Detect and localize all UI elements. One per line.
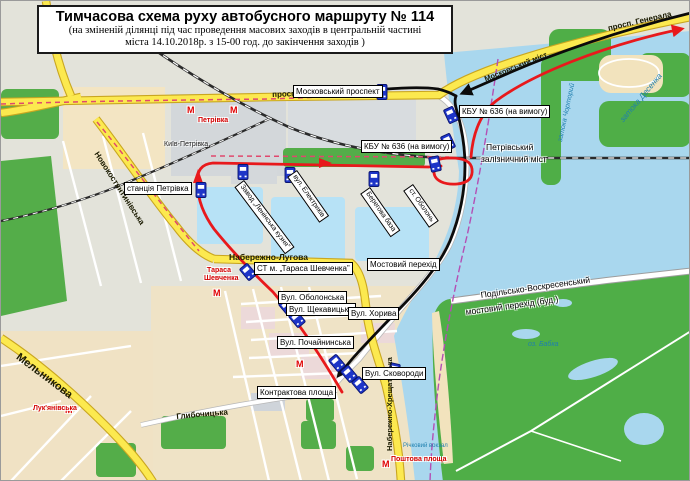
stop-label-st-m-tarasa-shevchenka: СТ м. „Тараса Шевченка” (254, 262, 353, 275)
stop-label-kbu-636-b: КБУ № 636 (на вимогу) (459, 105, 550, 118)
stop-label-vul-skovorody: Вул. Сковороди (362, 367, 426, 380)
map-subtitle-line2: міста 14.10.2018р. з 15-00 год. до закін… (41, 37, 449, 49)
metro-icon: М (382, 460, 390, 469)
stop-label-mostovyi-perekhid: Мостовий перехід (367, 258, 440, 271)
metro-label-poshtova-ploshcha: Поштова площа (391, 456, 447, 463)
station-label-kyiv-petrivka: Київ-Петрівка (164, 141, 208, 148)
road-label-naberezhno-luhova: Набережно-Лугова (229, 252, 308, 262)
metro-icon: М (230, 106, 238, 115)
stop-label-moskovskyi-prospekt: Московський проспект (293, 85, 383, 98)
stop-label-vul-shchekavytska: Вул. Щекавицька (286, 303, 356, 316)
stop-label-vul-pochayninska: Вул. Почайнинська (277, 336, 354, 349)
map-title: Тимчасова схема руху автобусного маршрут… (41, 9, 449, 25)
metro-icon: М (187, 106, 195, 115)
metro-label-petrivka: Петрівка (198, 117, 228, 124)
bus-stop-icon (196, 183, 206, 198)
stop-label-kbu-636-a: КБУ № 636 (на вимогу) (361, 140, 452, 153)
metro-label-tarasa-shevchenka-line2: Шевченка (204, 275, 239, 282)
map-canvas: Тимчасова схема руху автобусного маршрут… (0, 0, 690, 481)
label-richkovyi-vokzal: Річковий вокзал (403, 443, 448, 449)
water-label-oz-babka: оз. Бабка (528, 341, 559, 348)
stop-label-vul-khoryva: Вул. Хорива (348, 307, 399, 320)
metro-icon: М (296, 360, 304, 369)
metro-icon: М (213, 289, 221, 298)
metro-label-lukianivska: Лук'янівська (33, 405, 77, 412)
stop-label-kontraktova-ploshcha: Контрактова площа (257, 386, 336, 399)
bus-stop-icon (369, 172, 379, 187)
metro-label-tarasa-shevchenka-line1: Тараса (207, 267, 231, 274)
map-graphics (1, 1, 690, 481)
bus-stop-icon (238, 165, 248, 180)
bridge-label-petrivskyi-line2: залізничний міст (481, 154, 547, 164)
bridge-label-petrivskyi-line1: Петрівський (486, 142, 533, 152)
title-box: Тимчасова схема руху автобусного маршрут… (37, 5, 453, 54)
station-label-petrivka: станція Петрівка (124, 182, 192, 195)
map-subtitle-line1: (на зміненій ділянці під час проведення … (41, 25, 449, 37)
